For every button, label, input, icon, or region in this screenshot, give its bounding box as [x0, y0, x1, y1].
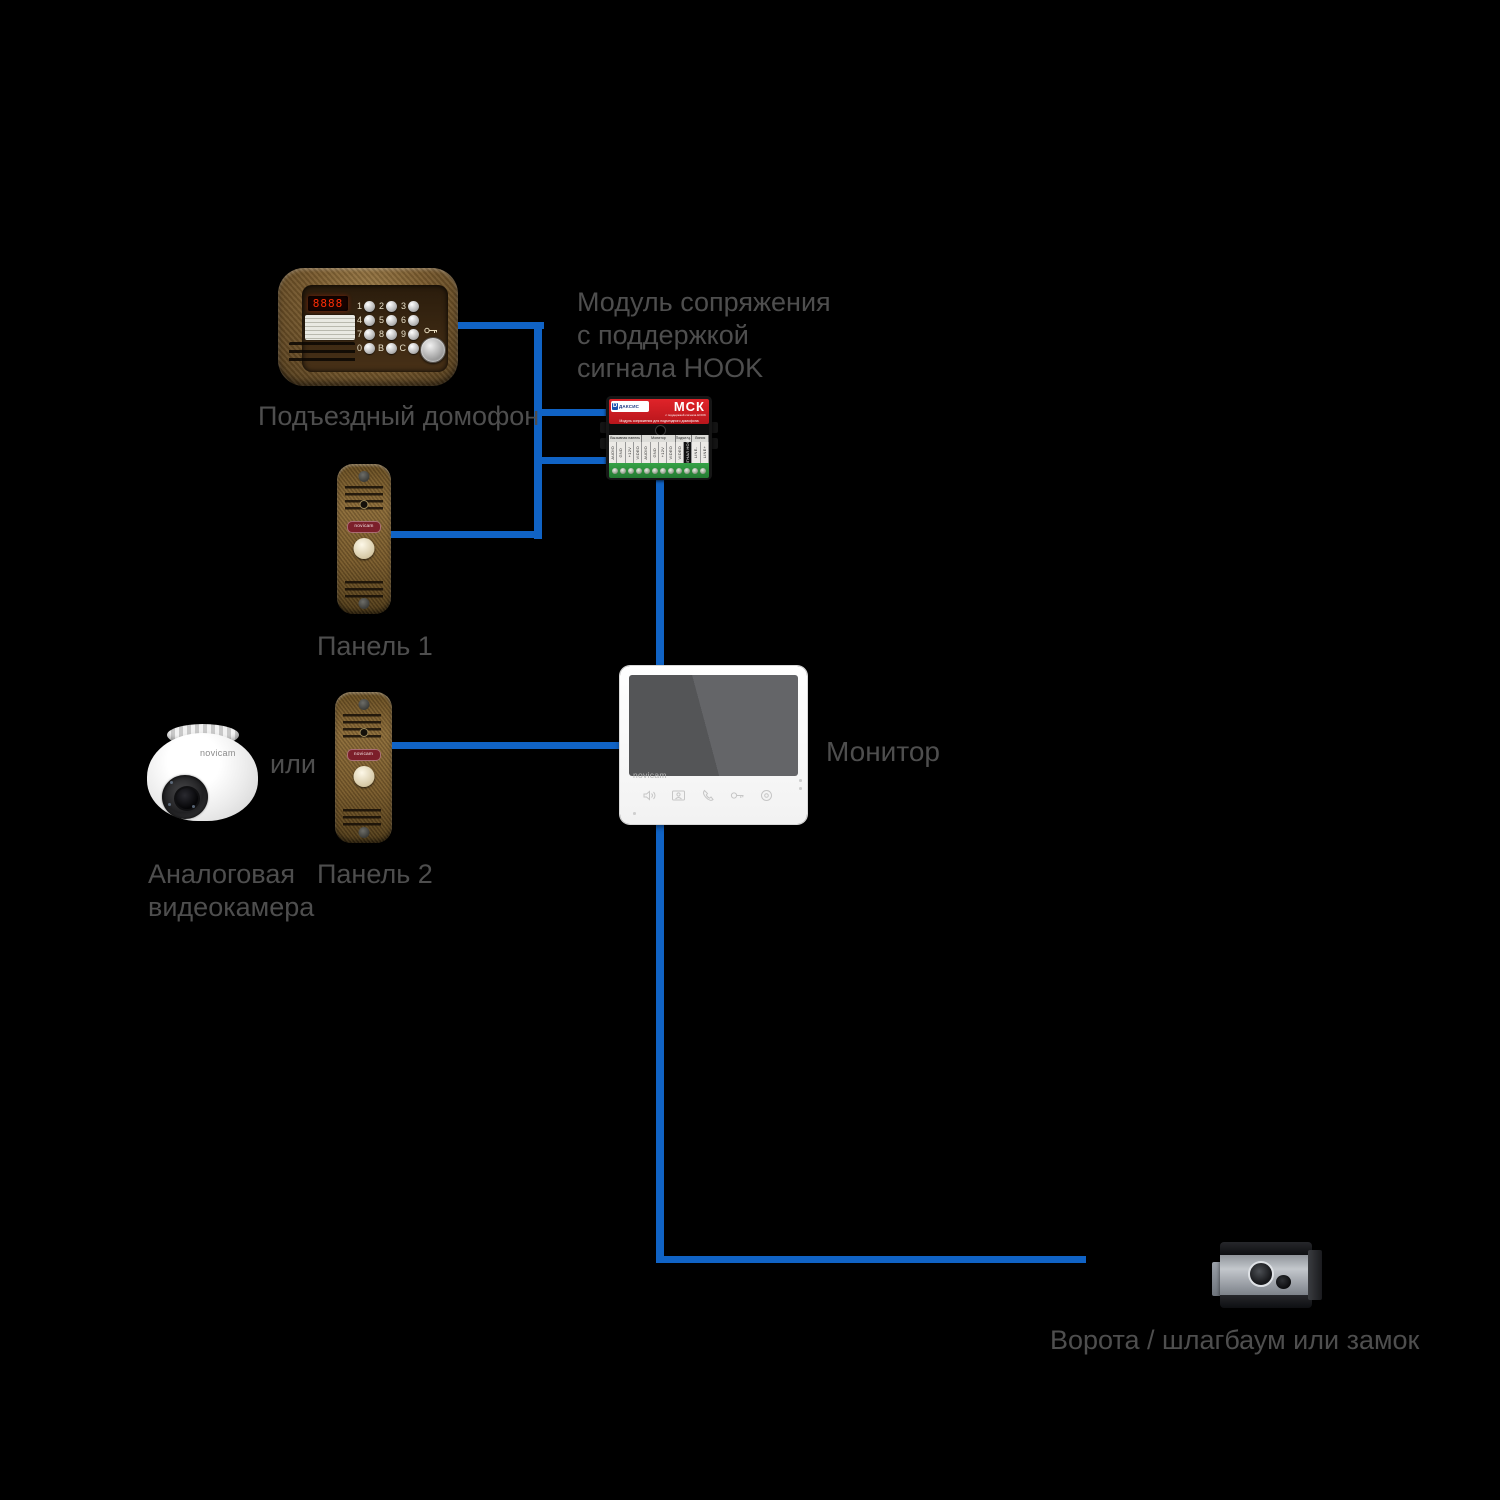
panel-mic-slots [343, 809, 381, 827]
keypad-digit: 9 [398, 329, 408, 339]
analog-dome-camera: novicam [145, 720, 260, 822]
keypad-digit: 2 [376, 301, 386, 311]
lock-top-band [1220, 1242, 1312, 1255]
lock-bottom-band [1220, 1295, 1312, 1308]
terminal-label: VIDEO [677, 446, 682, 459]
wire-trunk-to-module-upper [542, 409, 606, 416]
terminal-screw [700, 468, 706, 474]
terminal-screw [612, 468, 618, 474]
camera-label-line2: видеокамера [148, 892, 314, 922]
keypad-button [364, 343, 375, 354]
intercom-keypad: 1234567890ВС [354, 299, 422, 356]
daksis-brand-text: ДАКСИС [619, 404, 639, 409]
keypad-button [386, 329, 397, 340]
keypad-digit: 5 [376, 315, 386, 325]
wire-intercom-to-trunk [455, 322, 544, 329]
novicam-badge: novicam [347, 521, 381, 533]
keypad-button [408, 329, 419, 340]
module-note-line1: Модуль сопряжения [577, 287, 831, 317]
intercom-call-button [420, 337, 446, 363]
keypad-digit: 1 [354, 301, 364, 311]
keypad-digit: 3 [398, 301, 408, 311]
mck-interface-module: D ДАКСИС МСК с поддержкой сигнала HOOK М… [600, 396, 718, 482]
view-icon [671, 788, 686, 803]
module-black-strip [609, 424, 709, 435]
camera-lens-pupil [174, 786, 200, 811]
electric-lock-device [1212, 1242, 1322, 1308]
door-panel-1: novicam [337, 464, 391, 614]
wire-module-to-monitor [656, 478, 664, 670]
keypad-digit: 7 [354, 329, 364, 339]
keypad-button [386, 343, 397, 354]
module-note-line3: сигнала HOOK [577, 353, 763, 383]
terminal-label-strip: СИГНАЛ HOOK [684, 442, 692, 463]
terminal-group-header: Вызывная панель [609, 435, 642, 442]
terminal-label: VIDEO [668, 446, 673, 459]
terminal-screw [636, 468, 642, 474]
module-terminal-groups: Вызывная панельМониторПодъезд. домофонЛи… [609, 435, 709, 442]
terminal-label-strip: AUDIO [609, 442, 617, 463]
terminal-label: GND [618, 448, 623, 458]
door-panel-2: novicam [335, 692, 392, 843]
terminal-screw [644, 468, 650, 474]
terminal-label-strip: LINE- [692, 442, 700, 463]
terminal-label-strip: VIDEO [676, 442, 684, 463]
keypad-digit: 6 [398, 315, 408, 325]
keypad-digit: 8 [376, 329, 386, 339]
intercom-speaker-grill [289, 342, 355, 366]
panel-call-button [354, 538, 375, 559]
keypad-button [408, 301, 419, 312]
intercom-instruction-card [305, 315, 355, 340]
panel-screw [359, 598, 370, 609]
terminal-screw [684, 468, 690, 474]
camera-ir-led [168, 803, 171, 806]
monitor-mic-hole [799, 779, 802, 782]
camera-label-line1: Аналоговая [148, 859, 295, 889]
panel-mic-slots [345, 581, 383, 599]
monitor-brand-text: novicam [633, 770, 667, 780]
keypad-button [408, 315, 419, 326]
label-entrance-intercom: Подъездный домофон [258, 400, 539, 433]
indoor-monitor: novicam [620, 666, 807, 824]
keypad-button [364, 301, 375, 312]
label-analog-camera: Аналоговая видеокамера [148, 858, 314, 924]
module-body: D ДАКСИС МСК с поддержкой сигнала HOOK М… [606, 396, 712, 480]
lock-button [1276, 1275, 1291, 1289]
keypad-digit: 4 [354, 315, 364, 325]
terminal-screw [668, 468, 674, 474]
terminal-label-strip: +12V [626, 442, 634, 463]
camera-ir-led [170, 781, 173, 784]
module-model-text: МСК [674, 399, 705, 414]
label-panel2: Панель 2 [317, 858, 433, 891]
key-icon [424, 326, 438, 335]
panel-camera-lens [360, 500, 369, 509]
module-terminal-labels: Вызывная панельМониторПодъезд. домофонЛи… [609, 435, 709, 463]
terminal-label-strip: VIDEO [667, 442, 675, 463]
panel-camera-lens [359, 728, 368, 737]
terminal-screw [620, 468, 626, 474]
talk-icon [701, 788, 716, 803]
monitor-mic-hole [633, 812, 636, 815]
unlock-icon [730, 788, 745, 803]
entrance-intercom-device: 8888 1234567890ВС [278, 268, 458, 386]
terminal-label: AUDIO [643, 446, 648, 460]
intercom-led-display: 8888 [308, 296, 348, 311]
panel-call-button [353, 766, 374, 787]
daksis-logo: D ДАКСИС [611, 401, 649, 412]
terminal-label-strip: +12V [659, 442, 667, 463]
panel-screw [358, 699, 369, 710]
terminal-screw [652, 468, 658, 474]
module-subtitle: Модуль сопряжения для подъездного домофо… [609, 419, 709, 423]
novicam-badge: novicam [347, 749, 381, 761]
wire-panel2-to-monitor [392, 742, 622, 749]
wire-monitor-down [656, 820, 664, 1263]
monitor-screen [629, 675, 798, 776]
monitor-touch-buttons [642, 788, 774, 803]
keypad-digit: С [398, 343, 408, 353]
module-terminal-strips: AUDIOGND+12VVIDEOAUDIOGND+12VVIDEOVIDEOС… [609, 442, 709, 463]
module-subtitle2: с поддержкой сигнала HOOK [665, 413, 706, 417]
lock-keyhole [1248, 1261, 1274, 1287]
menu-dial-icon [759, 788, 774, 803]
daksis-logo-mark: D [612, 403, 618, 410]
terminal-label: AUDIO [610, 446, 615, 460]
keypad-digit: В [376, 343, 386, 353]
wire-to-lock [656, 1256, 1086, 1263]
terminal-screw [660, 468, 666, 474]
terminal-label-strip: VIDEO [634, 442, 642, 463]
keypad-button [386, 315, 397, 326]
label-module-note: Модуль сопряжения с поддержкой сигнала H… [577, 286, 831, 385]
panel-screw [359, 471, 370, 482]
monitor-mic-hole [799, 787, 802, 790]
terminal-label-strip: GND [651, 442, 659, 463]
camera-lens [162, 775, 208, 819]
label-or: или [270, 748, 316, 781]
terminal-label: VIDEO [635, 446, 640, 459]
wiring-diagram: 8888 1234567890ВС Подъездный домофон Мод… [0, 0, 1500, 1500]
lock-body [1220, 1242, 1312, 1308]
terminal-label: GND [652, 448, 657, 458]
terminal-label-strip: AUDIO [642, 442, 650, 463]
terminal-label-strip: LINE+ [701, 442, 709, 463]
lock-steel-face [1220, 1255, 1312, 1295]
camera-ir-led [192, 805, 195, 808]
terminal-screw [628, 468, 634, 474]
label-gate: Ворота / шлагбаум или замок [1050, 1324, 1419, 1357]
keypad-digit: 0 [354, 343, 364, 353]
terminal-label-strip: GND [617, 442, 625, 463]
terminal-label: +12V [660, 447, 665, 457]
terminal-screw [692, 468, 698, 474]
keypad-button [386, 301, 397, 312]
lock-bolt-block [1308, 1250, 1322, 1300]
volume-icon [642, 788, 657, 803]
terminal-screw [676, 468, 682, 474]
terminal-group-header: Линия [692, 435, 709, 442]
terminal-group-header: Монитор [642, 435, 675, 442]
terminal-label: LINE+ [702, 446, 707, 458]
keypad-button [364, 329, 375, 340]
module-note-line2: с поддержкой [577, 320, 749, 350]
keypad-button [364, 315, 375, 326]
label-panel1: Панель 1 [317, 630, 433, 663]
panel-screw [358, 827, 369, 838]
wire-trunk-to-module-lower [542, 457, 606, 464]
module-terminal-block [609, 463, 709, 478]
camera-brand-text: novicam [200, 748, 236, 758]
wire-panel1-to-trunk [390, 531, 542, 538]
module-red-panel: D ДАКСИС МСК с поддержкой сигнала HOOK М… [609, 399, 709, 424]
terminal-label: LINE- [693, 447, 698, 458]
terminal-label: +12V [627, 447, 632, 457]
label-monitor: Монитор [826, 735, 940, 768]
keypad-button [408, 343, 419, 354]
